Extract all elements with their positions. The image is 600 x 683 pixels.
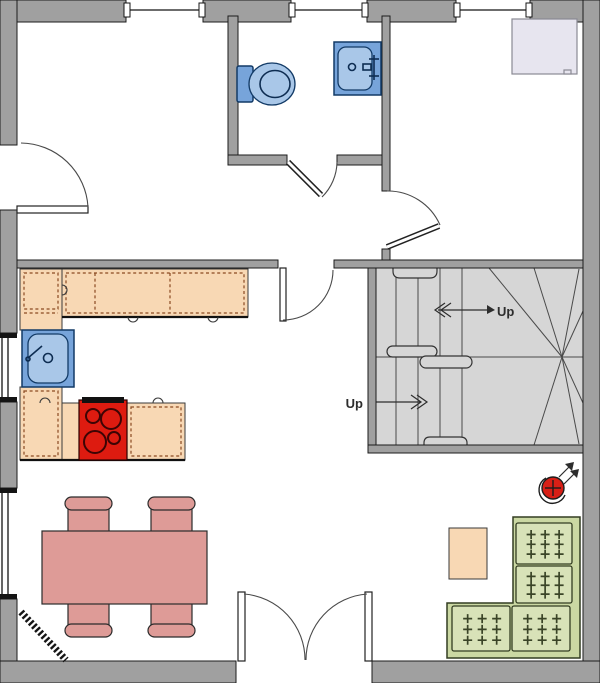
kitchen-sink — [22, 330, 74, 387]
floor-plan-canvas: Up Up — [0, 0, 600, 683]
dining-table — [42, 531, 207, 604]
dining-chair — [148, 603, 195, 637]
window-left-2 — [0, 488, 17, 599]
stair-handrail-mid-lower — [420, 356, 472, 368]
closet — [512, 19, 577, 74]
ceiling-lamp — [539, 462, 579, 503]
dining-set — [42, 497, 207, 637]
living-room-door — [280, 268, 333, 321]
floor-plan: Up Up — [0, 0, 600, 683]
window-left-1 — [0, 333, 17, 402]
patio-double-door — [238, 592, 372, 661]
radiator — [21, 612, 66, 660]
side-table — [449, 528, 487, 579]
dining-chair — [65, 497, 112, 532]
toilet — [237, 63, 295, 105]
stair-handrail-mid-upper — [387, 346, 437, 357]
entry-door — [17, 143, 88, 213]
window-top-3 — [454, 3, 532, 17]
window-top-2 — [289, 3, 368, 17]
stair-handrail-top — [393, 268, 437, 278]
bathroom-door — [288, 162, 337, 197]
window-top-1 — [124, 3, 205, 17]
bathroom-sink — [334, 42, 381, 95]
dining-chair — [65, 603, 112, 637]
up-text-lower: Up — [346, 396, 363, 411]
dining-chair — [148, 497, 195, 532]
staircase: Up Up — [346, 268, 583, 445]
stair-handrail-bottom — [424, 437, 467, 445]
stove — [79, 397, 127, 460]
up-text-upper: Up — [497, 304, 514, 319]
hall-door — [387, 191, 440, 247]
